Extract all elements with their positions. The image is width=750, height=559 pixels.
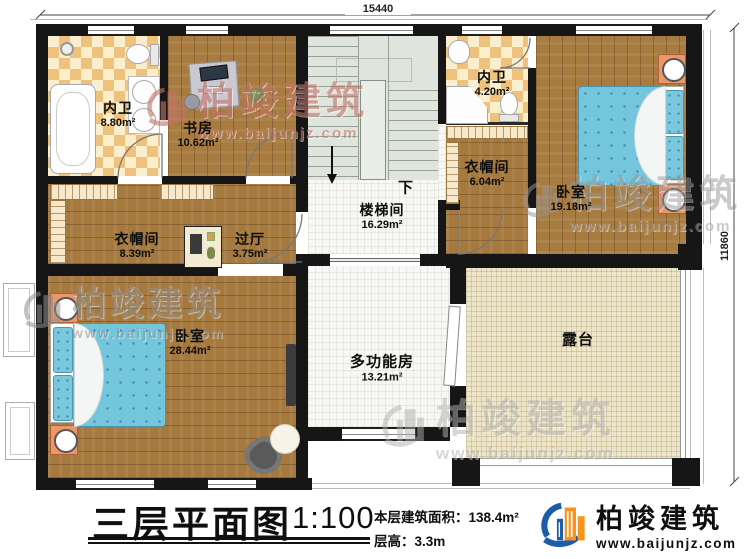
room-label-study: 书房10.62m²	[178, 121, 219, 149]
title-underline-2	[88, 542, 370, 544]
floor-plan-canvas: 15440 11860 柏竣建筑 www.baijunjz.com 柏竣建筑 w…	[0, 0, 750, 559]
room-label-bath-2: 内卫4.20m²	[475, 70, 510, 98]
room-label-bedroom-2: 卧室19.18m²	[551, 185, 592, 213]
dimension-top: 15440	[345, 3, 411, 15]
room-label-terrace: 露台	[562, 333, 594, 350]
dimension-right: 11860	[719, 213, 731, 279]
room-label-cloakroom-2: 衣帽间6.04m²	[465, 160, 510, 188]
floor-height-text: 层高：3.3m	[374, 530, 445, 550]
brand-logo-icon	[536, 498, 590, 550]
stair-direction-label: 下	[398, 181, 414, 198]
room-label-multi-room: 多功能房13.21m²	[350, 354, 414, 383]
room-label-bath-1: 内卫8.80m²	[101, 101, 136, 129]
floor-area-text: 本层建筑面积：138.4m²	[374, 506, 519, 526]
room-label-stairwell: 楼梯间16.29m²	[360, 203, 405, 231]
brand-url: www.baijunjz.com	[596, 536, 737, 551]
brand-name: 柏竣建筑	[596, 497, 737, 536]
room-label-cloakroom-1: 衣帽间8.39m²	[115, 232, 160, 260]
brand-logo: 柏竣建筑 www.baijunjz.com	[536, 496, 746, 552]
door-arcs-and-dimensions	[0, 0, 750, 559]
plan-title: 三层平面图	[92, 494, 292, 548]
plan-scale: 1:100	[292, 500, 375, 536]
title-underline	[88, 537, 370, 540]
door-arcs	[118, 38, 530, 262]
room-label-hall: 过厅3.75m²	[233, 232, 268, 260]
room-label-bedroom-1: 卧室28.44m²	[170, 329, 211, 357]
